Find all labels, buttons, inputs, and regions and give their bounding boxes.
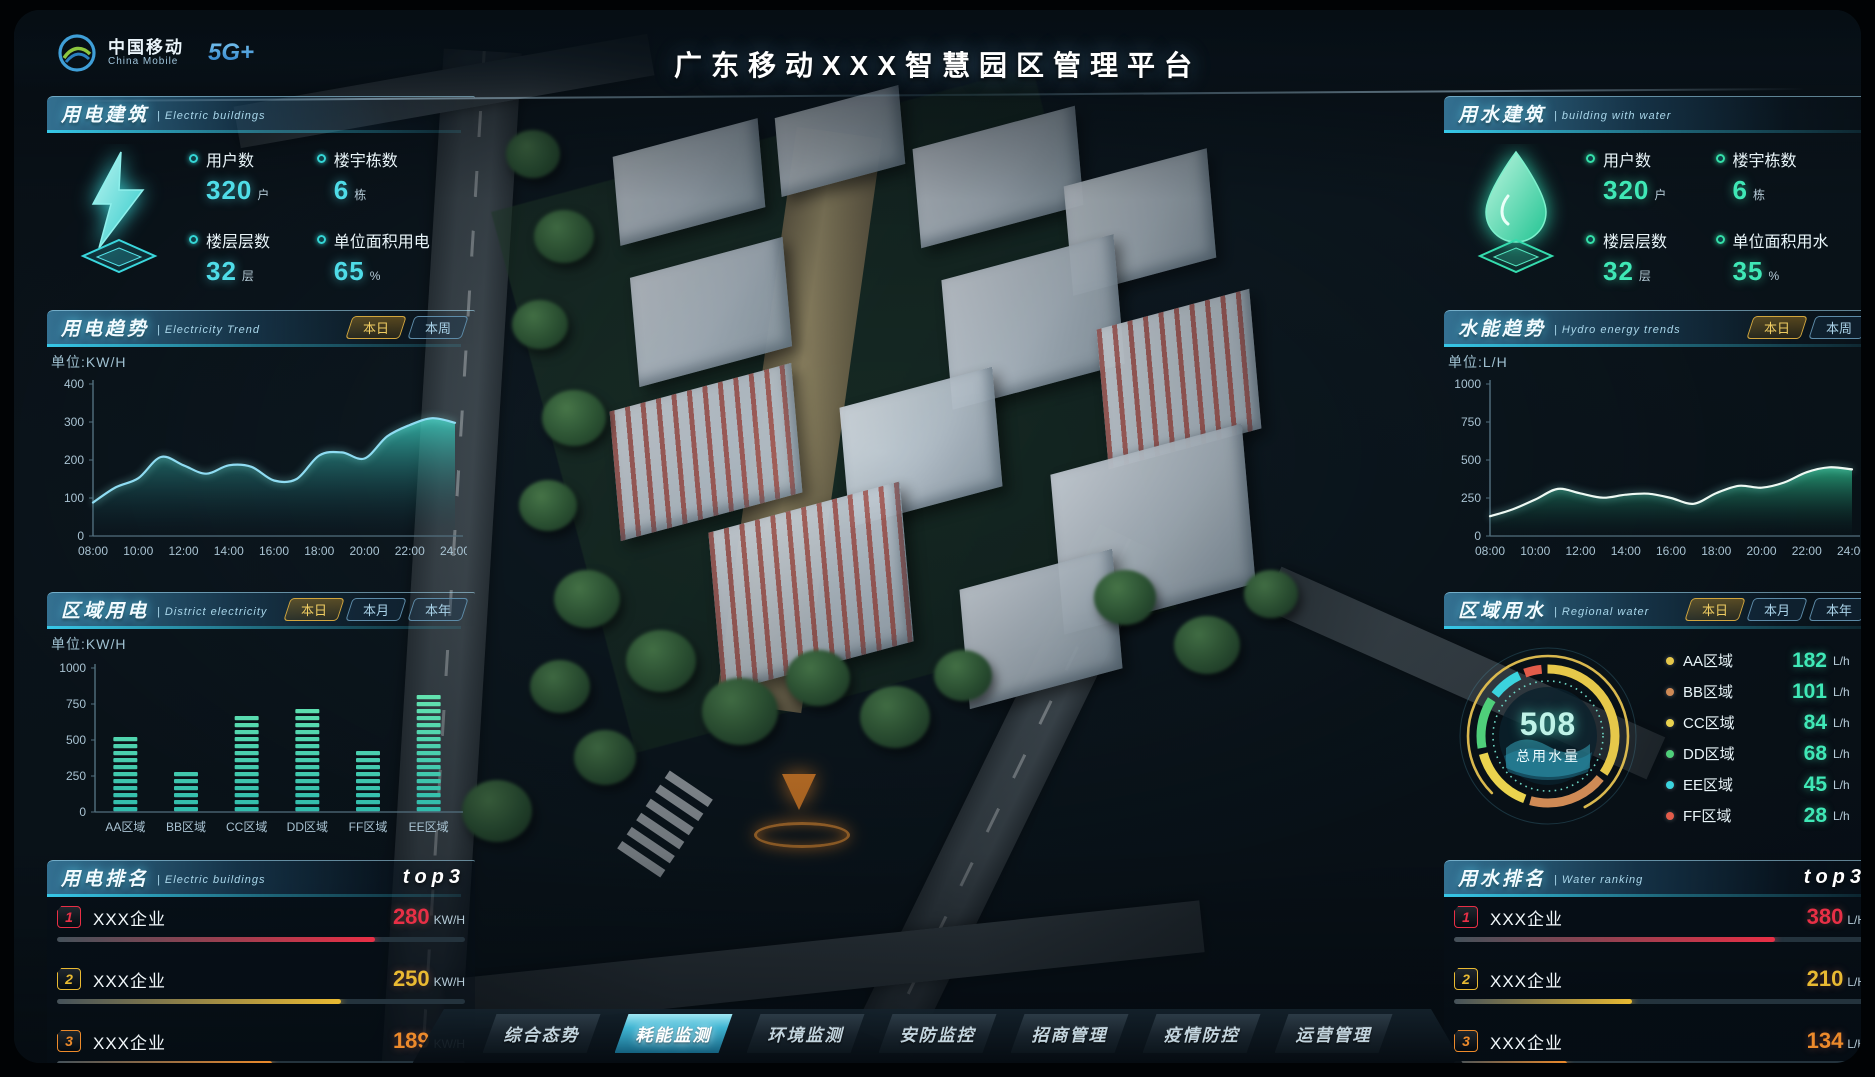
nav-item-epidemic[interactable]: 疫情防控: [1143, 1014, 1261, 1053]
bullet-icon: [317, 154, 326, 163]
legend-dot-icon: [1666, 812, 1674, 820]
svg-text:EE区域: EE区域: [409, 820, 449, 834]
ranking-row: 2XXX企业250KW/H: [47, 956, 475, 1018]
panel-electric-building: 用电建筑 | Electric buildings 用户数320户 楼宇栋数6栋: [47, 96, 475, 289]
gauge-value: 508: [1520, 706, 1576, 743]
electricity-trend-area-chart: 010020030040008:0010:0012:0014:0016:0018…: [47, 372, 467, 564]
rank-badge: 1: [1454, 906, 1478, 928]
svg-text:16:00: 16:00: [1656, 544, 1686, 558]
tab-this-week[interactable]: 本周: [1808, 316, 1861, 339]
svg-text:300: 300: [64, 415, 84, 429]
svg-text:16:00: 16:00: [259, 544, 289, 558]
svg-text:24:00: 24:00: [440, 544, 467, 558]
panel-electric-ranking: 用电排名 | Electric buildings top3 1XXX企业280…: [47, 860, 475, 1063]
tab-this-month[interactable]: 本月: [345, 598, 406, 621]
panel-hydro-trend: 水能趋势 | Hydro energy trends 本日 本周 单位:L/H …: [1444, 310, 1861, 564]
tab-this-week[interactable]: 本周: [407, 316, 468, 339]
unit-label: 单位:KW/H: [47, 626, 475, 654]
panel-water-building: 用水建筑 | building with water 用户数320户: [1444, 96, 1861, 289]
svg-text:12:00: 12:00: [168, 544, 198, 558]
panel-header: 用电排名 | Electric buildings top3: [47, 860, 475, 894]
unit-label: 单位:L/H: [1444, 344, 1861, 372]
legend-dot-icon: [1666, 688, 1674, 696]
unit-label: 单位:KW/H: [47, 344, 475, 372]
bullet-icon: [1586, 235, 1595, 244]
rank-progress: [57, 999, 465, 1004]
rank-badge: 2: [57, 968, 81, 990]
svg-text:14:00: 14:00: [1611, 544, 1641, 558]
legend-dot-icon: [1666, 719, 1674, 727]
panel-header: 水能趋势 | Hydro energy trends 本日 本周: [1444, 310, 1861, 344]
page-title: 广东移动XXX智慧园区管理平台: [674, 44, 1201, 84]
panel-subtitle: | Regional water: [1554, 606, 1649, 618]
regional-water-legend: AA区域182L/h BB区域101L/h CC区域84L/h DD区域68L/…: [1648, 641, 1861, 831]
legend-dot-icon: [1666, 750, 1674, 758]
svg-text:CC区域: CC区域: [226, 820, 267, 834]
svg-text:400: 400: [64, 377, 84, 391]
rank-progress: [1454, 1061, 1861, 1063]
legend-item: FF区域28L/h: [1666, 800, 1861, 831]
rank-progress: [1454, 937, 1861, 942]
nav-item-security[interactable]: 安防监控: [879, 1014, 997, 1053]
svg-text:08:00: 08:00: [1475, 544, 1505, 558]
svg-text:12:00: 12:00: [1565, 544, 1595, 558]
dashboard-screen: 中国移动 China Mobile 5G+ 广东移动XXX智慧园区管理平台 用电…: [0, 0, 1875, 1077]
legend-item: EE区域45L/h: [1666, 769, 1861, 800]
panel-header: 区域用水 | Regional water 本日 本月 本年: [1444, 592, 1861, 626]
nav-item-environment[interactable]: 环境监测: [747, 1014, 865, 1053]
bullet-icon: [317, 235, 326, 244]
panel-title: 用电排名: [61, 864, 149, 891]
app-frame: 中国移动 China Mobile 5G+ 广东移动XXX智慧园区管理平台 用电…: [14, 10, 1861, 1063]
panel-title: 用水排名: [1458, 864, 1546, 891]
svg-text:10:00: 10:00: [123, 544, 153, 558]
lightning-icon: [55, 144, 183, 289]
svg-text:20:00: 20:00: [1746, 544, 1776, 558]
stat-users: 用户数320户: [189, 147, 311, 206]
bullet-icon: [189, 154, 198, 163]
nav-item-overall[interactable]: 综合态势: [483, 1014, 601, 1053]
svg-text:100: 100: [64, 491, 84, 505]
svg-text:500: 500: [1461, 453, 1481, 467]
electric-building-stats: 用户数320户 楼宇栋数6栋 楼层层数32层 单位面积用电65%: [189, 147, 469, 287]
legend-dot-icon: [1666, 657, 1674, 665]
ranking-row: 3XXX企业189KW/H: [47, 1018, 475, 1063]
gauge-label: 总用水量: [1516, 746, 1580, 766]
panel-subtitle: | Electricity Trend: [157, 324, 260, 336]
legend-dot-icon: [1666, 781, 1674, 789]
svg-text:1000: 1000: [1454, 377, 1481, 391]
panel-subtitle: | Hydro energy trends: [1554, 324, 1681, 336]
svg-text:250: 250: [66, 769, 86, 783]
top3-badge: top3: [1804, 866, 1861, 889]
bullet-icon: [189, 235, 198, 244]
stat-users: 用户数320户: [1586, 147, 1710, 206]
panel-header: 用水建筑 | building with water: [1444, 96, 1861, 130]
rank-badge: 2: [1454, 968, 1478, 990]
china-mobile-brand: 中国移动 China Mobile 5G+: [56, 32, 254, 74]
svg-text:0: 0: [77, 529, 84, 543]
rank-progress: [1454, 999, 1861, 1004]
water-ranking-list: 1XXX企业380L/H 2XXX企业210L/H 3XXX企业134L/H: [1444, 894, 1861, 1063]
ranking-row: 1XXX企业280KW/H: [47, 894, 475, 956]
svg-text:10:00: 10:00: [1520, 544, 1550, 558]
svg-text:500: 500: [66, 733, 86, 747]
electric-ranking-list: 1XXX企业280KW/H 2XXX企业250KW/H 3XXX企业189KW/…: [47, 894, 475, 1063]
panel-header: 区域用电 | District electricity 本日 本月 本年: [47, 592, 475, 626]
svg-text:250: 250: [1461, 491, 1481, 505]
legend-item: BB区域101L/h: [1666, 676, 1861, 707]
stat-buildings: 楼宇栋数6栋: [1716, 147, 1861, 206]
bullet-icon: [1586, 154, 1595, 163]
panel-regional-water: 区域用水 | Regional water 本日 本月 本年 508 总用水量: [1444, 592, 1861, 836]
svg-text:1000: 1000: [59, 661, 86, 675]
brand-name-en: China Mobile: [108, 57, 184, 68]
panel-subtitle: | Water ranking: [1554, 874, 1643, 886]
nav-item-operations[interactable]: 运营管理: [1275, 1014, 1393, 1053]
svg-text:0: 0: [79, 805, 86, 819]
rank-badge: 3: [57, 1030, 81, 1052]
tab-this-year[interactable]: 本年: [407, 598, 468, 621]
panel-subtitle: | Electric buildings: [157, 874, 265, 886]
panel-subtitle: | Electric buildings: [157, 110, 265, 122]
ranking-row: 1XXX企业380L/H: [1444, 894, 1861, 956]
hydro-trend-area-chart: 0250500750100008:0010:0012:0014:0016:001…: [1444, 372, 1861, 564]
ranking-row: 2XXX企业210L/H: [1444, 956, 1861, 1018]
svg-text:18:00: 18:00: [1701, 544, 1731, 558]
svg-text:750: 750: [66, 697, 86, 711]
5g-badge: 5G+: [208, 39, 254, 67]
tab-today[interactable]: 本日: [1746, 316, 1807, 339]
panel-title: 区域用电: [61, 596, 149, 623]
total-water-gauge: 508 总用水量: [1448, 636, 1648, 836]
panel-water-ranking: 用水排名 | Water ranking top3 1XXX企业380L/H 2…: [1444, 860, 1861, 1063]
legend-item: DD区域68L/h: [1666, 738, 1861, 769]
svg-text:22:00: 22:00: [1792, 544, 1822, 558]
svg-text:DD区域: DD区域: [287, 820, 328, 834]
nav-item-investment[interactable]: 招商管理: [1011, 1014, 1129, 1053]
china-mobile-logo-icon: [56, 32, 98, 74]
rank-progress: [57, 1061, 465, 1063]
panel-district-electricity: 区域用电 | District electricity 本日 本月 本年 单位:…: [47, 592, 475, 840]
svg-text:AA区域: AA区域: [105, 820, 145, 834]
stat-area-water: 单位面积用水35%: [1716, 228, 1861, 287]
svg-text:750: 750: [1461, 415, 1481, 429]
rank-progress: [57, 937, 465, 942]
bullet-icon: [1716, 154, 1725, 163]
bullet-icon: [1716, 235, 1725, 244]
rank-badge: 1: [57, 906, 81, 928]
panel-header: 用水排名 | Water ranking top3: [1444, 860, 1861, 894]
nav-item-energy-monitor[interactable]: 耗能监测: [615, 1014, 733, 1053]
rank-badge: 3: [1454, 1030, 1478, 1052]
panel-title: 用电趋势: [61, 314, 149, 341]
svg-text:FF区域: FF区域: [349, 820, 388, 834]
svg-text:20:00: 20:00: [349, 544, 379, 558]
top3-badge: top3: [403, 866, 465, 889]
svg-text:0: 0: [1474, 529, 1481, 543]
district-electricity-bar-chart: 02505007501000AA区域BB区域CC区域DD区域FF区域EE区域: [47, 654, 467, 840]
panel-subtitle: | District electricity: [157, 606, 267, 618]
brand-name-cn: 中国移动: [108, 39, 184, 57]
svg-text:200: 200: [64, 453, 84, 467]
tab-today[interactable]: 本日: [283, 598, 344, 621]
stat-floors: 楼层层数32层: [189, 228, 311, 287]
svg-text:18:00: 18:00: [304, 544, 334, 558]
legend-item: CC区域84L/h: [1666, 707, 1861, 738]
tab-this-year[interactable]: 本年: [1808, 598, 1861, 621]
ranking-row: 3XXX企业134L/H: [1444, 1018, 1861, 1063]
svg-text:22:00: 22:00: [395, 544, 425, 558]
panel-title: 用电建筑: [61, 100, 149, 127]
panel-title: 用水建筑: [1458, 100, 1546, 127]
panel-title: 水能趋势: [1458, 314, 1546, 341]
svg-text:24:00: 24:00: [1837, 544, 1861, 558]
stat-buildings: 楼宇栋数6栋: [317, 147, 469, 206]
stat-area-electricity: 单位面积用电65%: [317, 228, 469, 287]
bottom-navigation: 综合态势 耗能监测 环境监测 安防监控 招商管理 疫情防控 运营管理: [483, 1014, 1393, 1053]
svg-text:08:00: 08:00: [78, 544, 108, 558]
stat-floors: 楼层层数32层: [1586, 228, 1710, 287]
water-drop-icon: [1452, 144, 1580, 289]
panel-title: 区域用水: [1458, 596, 1546, 623]
tab-this-month[interactable]: 本月: [1746, 598, 1807, 621]
panel-electricity-trend: 用电趋势 | Electricity Trend 本日 本周 单位:KW/H 0…: [47, 310, 475, 564]
svg-text:14:00: 14:00: [214, 544, 244, 558]
legend-item: AA区域182L/h: [1666, 645, 1861, 676]
top-header: 中国移动 China Mobile 5G+ 广东移动XXX智慧园区管理平台: [14, 10, 1861, 98]
panel-header: 用电趋势 | Electricity Trend 本日 本周: [47, 310, 475, 344]
water-building-stats: 用户数320户 楼宇栋数6栋 楼层层数32层 单位面积用水35%: [1586, 147, 1861, 287]
tab-today[interactable]: 本日: [345, 316, 406, 339]
tab-today[interactable]: 本日: [1684, 598, 1745, 621]
svg-text:BB区域: BB区域: [166, 820, 206, 834]
panel-subtitle: | building with water: [1554, 110, 1671, 122]
